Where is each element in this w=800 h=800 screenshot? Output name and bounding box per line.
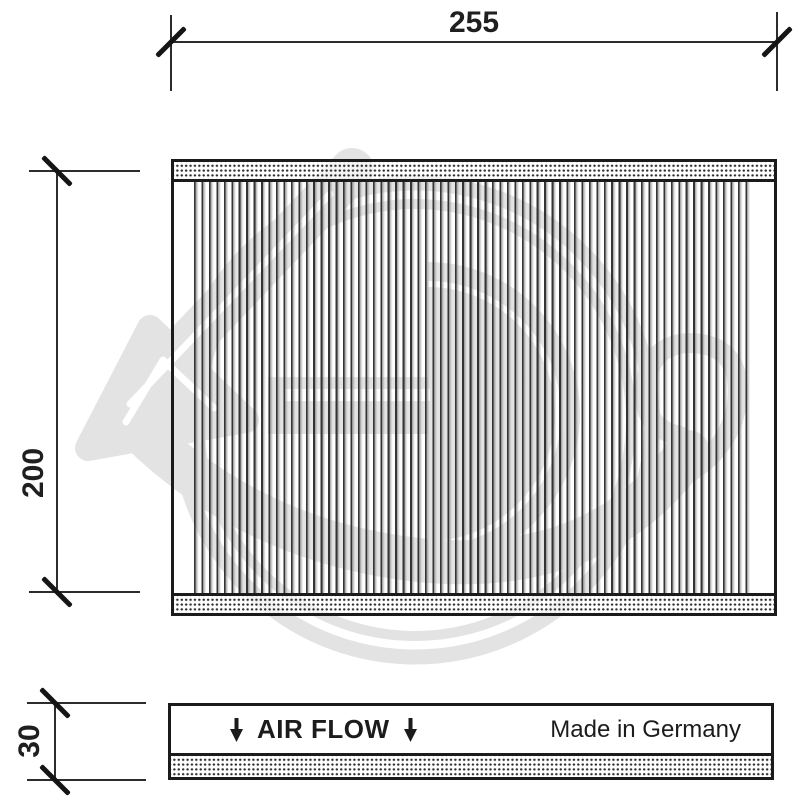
depth-extension-line-bottom	[27, 779, 146, 781]
width-extension-line-right	[776, 12, 778, 91]
filter-side-face: AIR FLOW Made in Germany	[171, 706, 771, 753]
width-extension-line-left	[170, 15, 172, 91]
filter-frame-bottom	[174, 593, 774, 613]
width-dimension-line	[171, 41, 777, 43]
filter-pleat-area	[174, 182, 774, 593]
made-in-germany-label: Made in Germany	[550, 716, 741, 744]
height-extension-line-bottom	[29, 591, 140, 593]
width-dimension-label: 255	[449, 8, 499, 38]
filter-pleats	[194, 182, 750, 593]
filter-top-view	[171, 159, 777, 616]
depth-extension-line-top	[27, 702, 146, 704]
drawing-canvas: 255 200 30	[0, 0, 800, 800]
height-dimension-line	[56, 171, 58, 592]
filter-side-media-band	[171, 753, 771, 777]
depth-dimension-line	[54, 703, 56, 780]
height-extension-line-top	[29, 170, 140, 172]
air-flow-label: AIR FLOW	[257, 714, 390, 745]
height-dimension-label: 200	[19, 448, 49, 498]
filter-frame-top	[174, 162, 774, 182]
down-arrow-icon	[403, 718, 418, 742]
depth-dimension-label: 30	[15, 724, 45, 757]
filter-side-view: AIR FLOW Made in Germany	[168, 703, 774, 780]
down-arrow-icon	[229, 718, 244, 742]
